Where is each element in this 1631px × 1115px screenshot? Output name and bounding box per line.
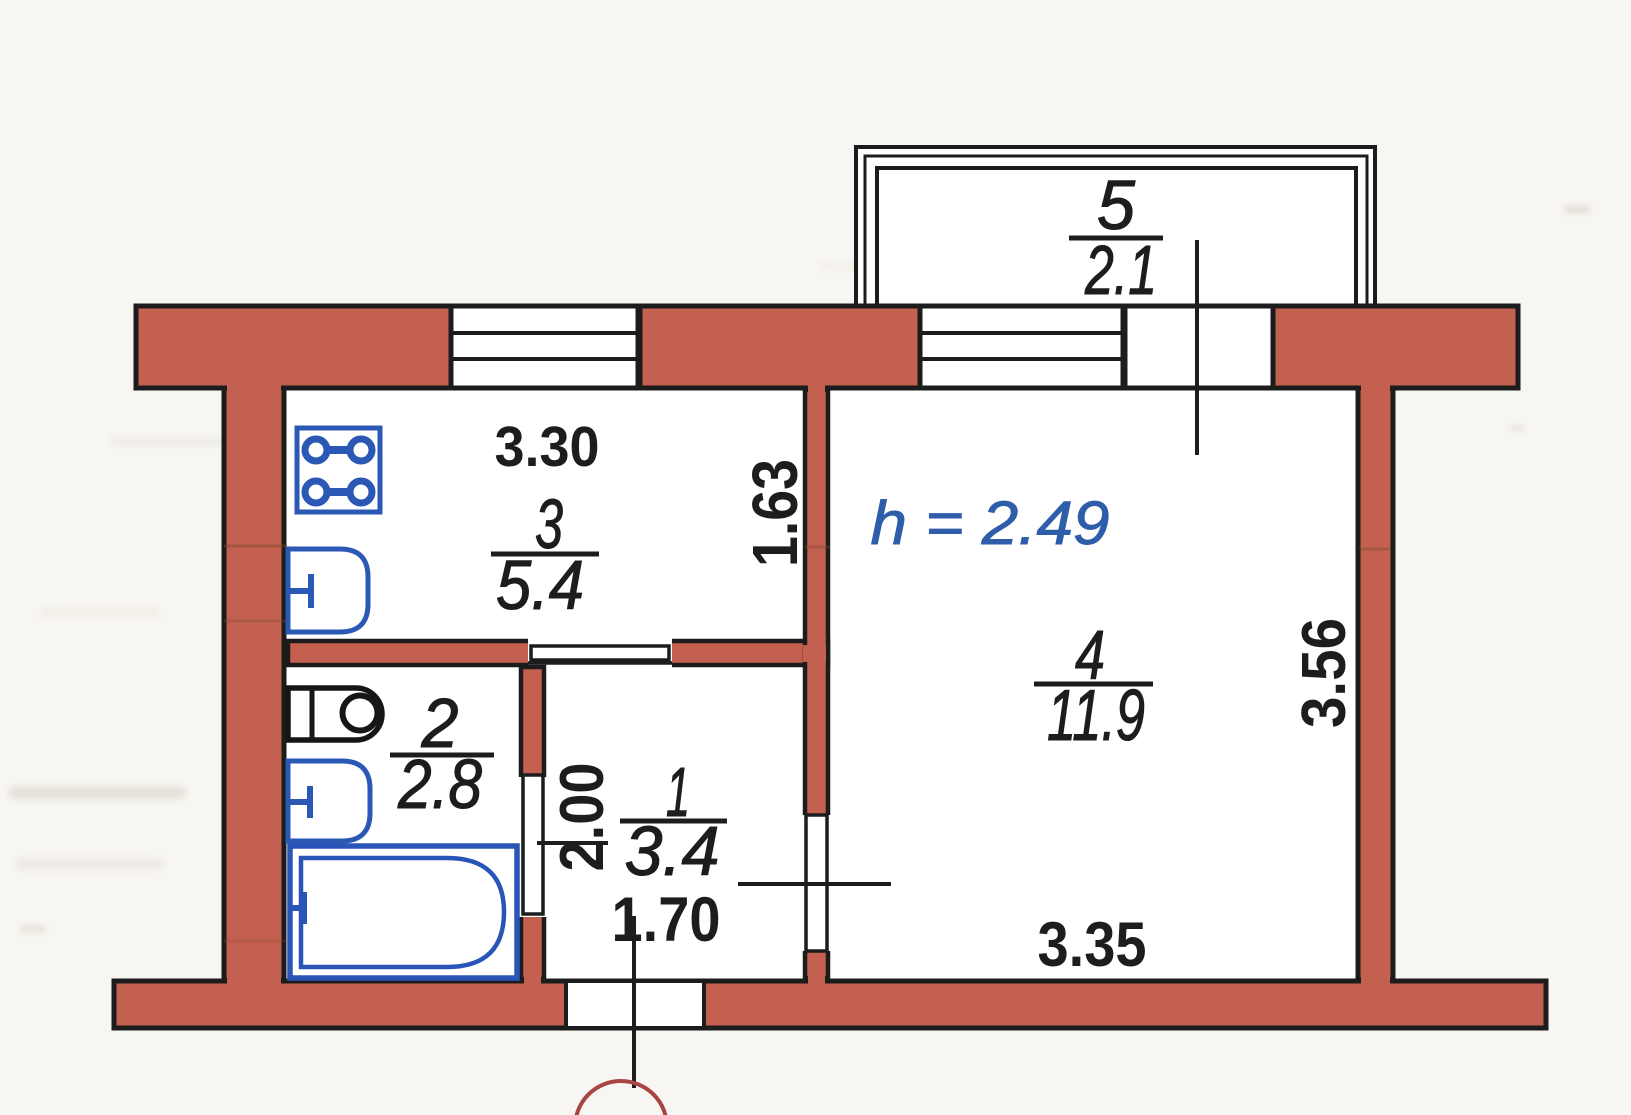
svg-text:3.56: 3.56 bbox=[1290, 618, 1359, 728]
svg-text:2.00: 2.00 bbox=[548, 763, 617, 872]
svg-text:2.8: 2.8 bbox=[397, 745, 482, 823]
svg-text:3.35: 3.35 bbox=[1038, 910, 1147, 980]
svg-text:h = 2.49: h = 2.49 bbox=[871, 489, 1110, 557]
svg-text:3.4: 3.4 bbox=[625, 812, 720, 890]
svg-text:1.70: 1.70 bbox=[612, 885, 721, 955]
svg-text:3.30: 3.30 bbox=[495, 415, 600, 479]
svg-text:11.9: 11.9 bbox=[1047, 676, 1145, 756]
svg-text:5.4: 5.4 bbox=[496, 546, 584, 624]
svg-text:2.1: 2.1 bbox=[1084, 231, 1157, 309]
svg-text:1.63: 1.63 bbox=[739, 459, 811, 567]
